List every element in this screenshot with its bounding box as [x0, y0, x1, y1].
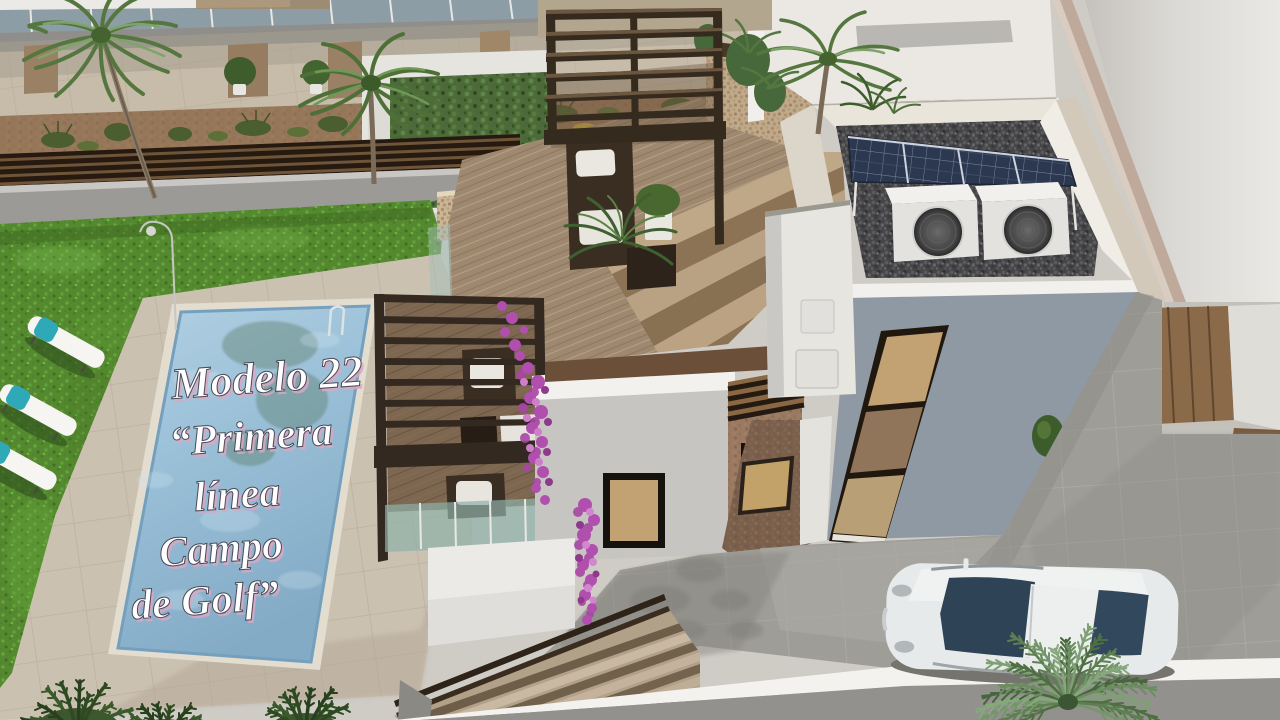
svg-text:línea: línea: [192, 469, 281, 521]
svg-text:Campo: Campo: [158, 522, 285, 577]
